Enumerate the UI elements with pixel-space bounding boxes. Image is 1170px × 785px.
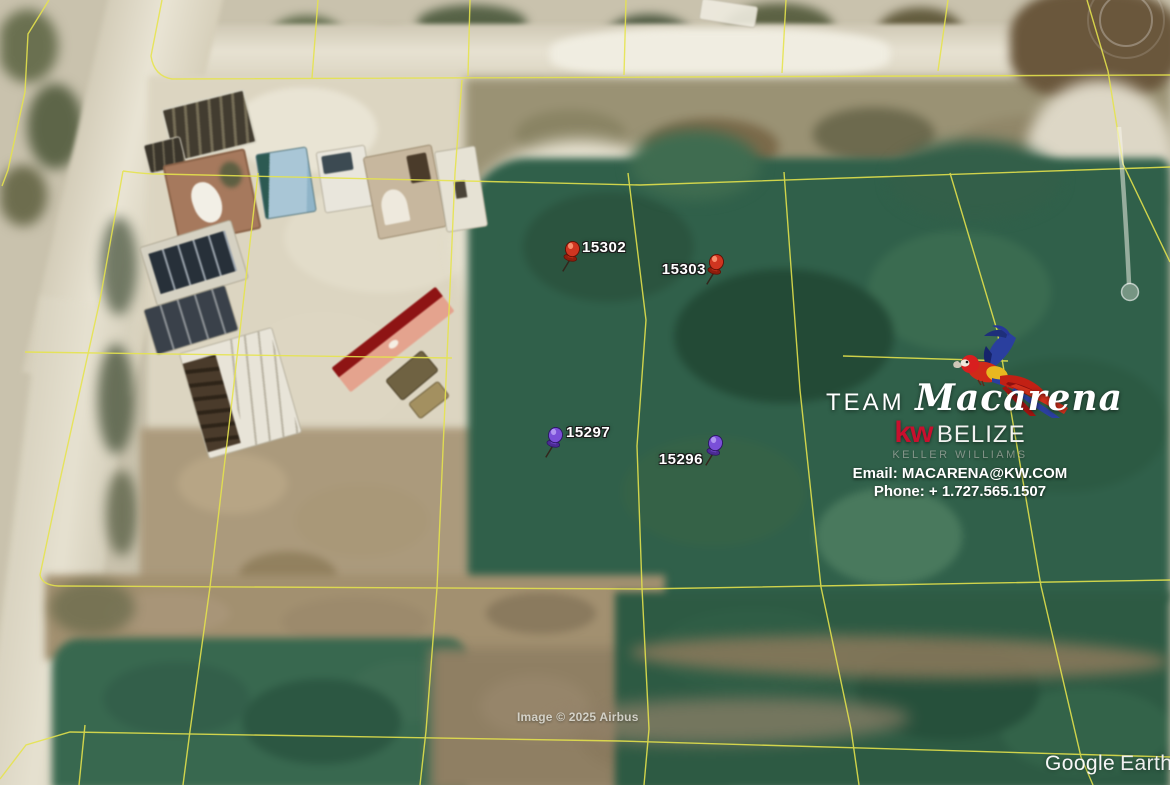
branding-email-text: Email: MACARENA@KW.COM [826,465,1094,482]
branding-phone-text: Phone: + 1.727.565.1507 [826,483,1094,500]
branding-block: TEAM Macarena kw BELIZE KELLER WILLIAMS … [826,378,1094,500]
pin-label: 15297 [566,424,610,441]
pin-label: 15296 [659,451,703,468]
branding-title-line: TEAM Macarena [826,378,1094,420]
branding-team-text: TEAM [826,389,905,416]
branding-kw-line: kw BELIZE [826,418,1094,448]
pin-label: 15302 [582,239,626,256]
pin-label: 15303 [662,261,706,278]
watermark-earth: Earth [1120,752,1170,775]
branding-franchise-text: KELLER WILLIAMS [826,449,1094,461]
imagery-attribution: Image © 2025 Airbus [517,710,639,724]
pushpin-icon[interactable] [703,435,729,471]
branding-region-text: BELIZE [937,421,1026,448]
google-earth-watermark: GoogleEarth [1045,752,1170,776]
kw-logo-text: kw [894,416,932,449]
pushpin-icon[interactable] [704,254,730,290]
branding-name-text: Macarena [915,377,1123,419]
google-earth-viewport[interactable]: 15302 15303 15297 [0,0,1170,785]
watermark-google: Google [1045,752,1115,775]
